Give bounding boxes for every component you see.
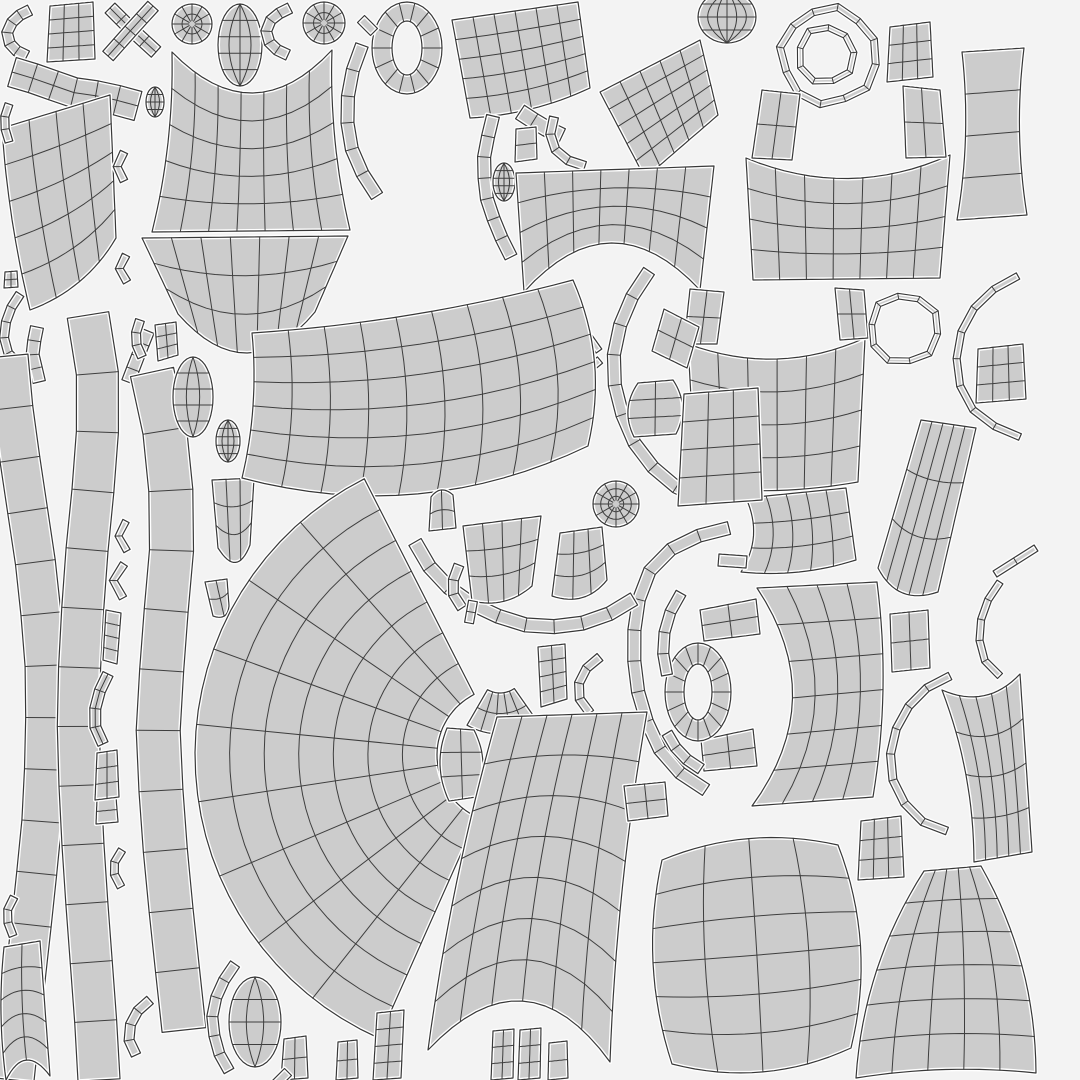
uv-island-l-bracket-1: [546, 116, 587, 170]
uv-wireframe-canvas: [0, 0, 1080, 1080]
uv-island-paw-a-tail: [465, 600, 478, 624]
uv-island-small-hex-1: [624, 782, 668, 821]
uv-island-paw-a: [463, 516, 541, 603]
uv-island-wedge-1: [890, 610, 930, 672]
uv-island-y-piece: [1, 941, 50, 1080]
uv-island-dome-2: [429, 490, 456, 531]
uv-island-bracket-4: [976, 580, 1003, 678]
uv-island-fold-grid-4: [858, 816, 904, 880]
uv-island-ball-dense-3: [216, 420, 240, 462]
uv-island-strip-2col: [538, 644, 567, 707]
uv-island-panel-top-1: [452, 2, 590, 118]
uv-island-hex-blob: [628, 380, 683, 437]
uv-island-bracket-5: [575, 654, 603, 716]
uv-island-chev-1: [1, 103, 13, 143]
uv-island-chev-7: [115, 519, 130, 552]
uv-island-strip-2col-b: [373, 1010, 404, 1080]
uv-island-egg-2: [229, 977, 281, 1067]
uv-island-glove-1: [155, 322, 178, 361]
uv-island-bar-3: [718, 554, 747, 568]
uv-island-boot-b: [336, 1040, 358, 1080]
uv-island-c-band-1: [2, 5, 33, 61]
uv-island-tall-panel: [957, 48, 1027, 220]
uv-island-small-rect-1: [548, 1041, 568, 1080]
uv-island-panel-top-2: [600, 40, 718, 178]
uv-island-ball-tall-1: [218, 4, 262, 86]
uv-island-oval-ring-2: [665, 643, 731, 741]
uv-island-ring-inner: [797, 25, 857, 84]
uv-island-boot-a-toe: [273, 1069, 292, 1080]
uv-island-pole-disc-1: [172, 4, 212, 44]
uv-island-striped-leg: [942, 674, 1032, 862]
uv-island-horn-1: [700, 599, 760, 641]
uv-island-shield-1: [205, 579, 229, 617]
uv-island-pole-disc-3: [593, 481, 639, 527]
uv-island-c-band-2: [261, 3, 293, 60]
uv-island-paw-b: [552, 527, 607, 599]
uv-island-vest1-body: [746, 155, 950, 280]
uv-island-chev-6: [111, 848, 126, 889]
uv-island-bell-skirt: [856, 866, 1036, 1078]
uv-layout-sheet: [0, 0, 1080, 1080]
uv-island-chev-8: [109, 562, 127, 600]
uv-island-rect-2x1: [515, 127, 537, 162]
uv-island-fold-grid-2: [887, 22, 933, 82]
uv-island-cushion: [653, 838, 862, 1073]
uv-island-arc-long-1: [887, 672, 952, 834]
uv-island-ball-dense-2: [493, 163, 515, 201]
uv-island-dome-1: [212, 478, 254, 562]
uv-island-bar-2: [993, 545, 1038, 577]
uv-island-ministrip-1: [103, 610, 121, 664]
uv-island-dbl-strip-b: [518, 1028, 541, 1080]
uv-island-bar-1: [358, 16, 378, 36]
uv-island-vest1-strap-l: [752, 90, 800, 160]
uv-island-ball-small-1: [146, 87, 164, 117]
uv-island-fold-grid-1: [47, 2, 95, 62]
uv-island-side-panel: [678, 388, 762, 506]
uv-island-chev-9: [124, 996, 153, 1057]
uv-island-ball-dense-1: [698, 0, 756, 43]
uv-island-pelvis: [752, 582, 883, 806]
uv-island-egg-1: [173, 357, 213, 437]
uv-island-striped-arm: [878, 420, 976, 596]
uv-island-vest2-strap-r: [835, 288, 868, 340]
uv-island-pole-disc-2: [303, 2, 345, 44]
uv-island-plus-tiny: [4, 271, 18, 288]
uv-island-oval-ring-1: [372, 2, 442, 94]
uv-island-long-band-3: [131, 367, 206, 1032]
uv-island-long-band-2: [57, 312, 120, 1080]
uv-island-paw-a-fingers: [449, 563, 467, 611]
uv-island-chev-3: [115, 253, 130, 284]
uv-island-boxer: [516, 166, 714, 292]
uv-island-dbl-strip-a: [491, 1029, 514, 1080]
uv-island-ring-decagon: [869, 293, 941, 363]
uv-island-vest1-strap-r: [903, 86, 946, 158]
uv-island-fold-grid-3: [976, 344, 1026, 403]
uv-island-small-patch-1: [95, 750, 119, 800]
